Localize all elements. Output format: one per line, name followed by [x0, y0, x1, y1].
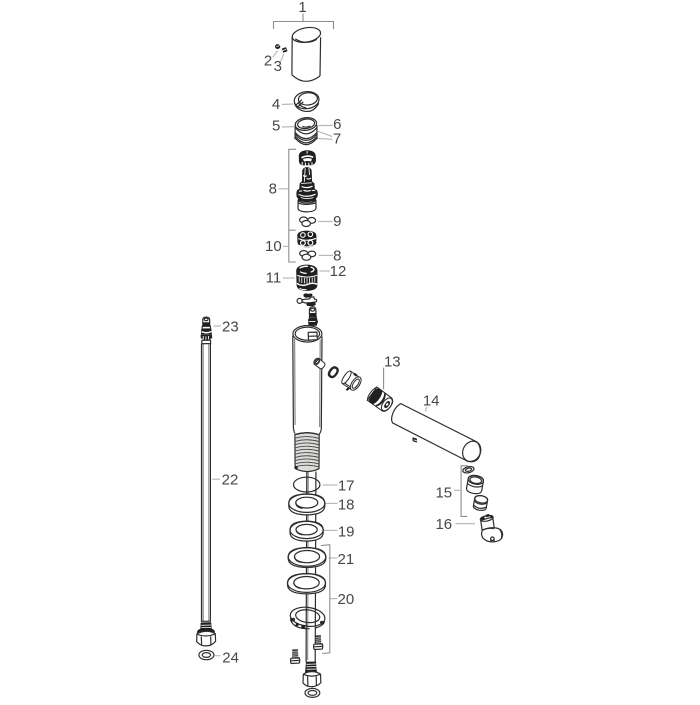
svg-text:21: 21: [338, 551, 355, 568]
svg-text:18: 18: [338, 496, 355, 513]
svg-text:5: 5: [272, 118, 280, 135]
svg-text:17: 17: [338, 477, 355, 494]
svg-text:2: 2: [264, 53, 272, 70]
svg-text:14: 14: [423, 392, 440, 409]
svg-text:16: 16: [435, 516, 452, 533]
svg-text:3: 3: [274, 58, 282, 75]
svg-text:22: 22: [222, 472, 239, 489]
svg-text:24: 24: [222, 650, 239, 667]
svg-text:8: 8: [269, 181, 277, 198]
svg-text:4: 4: [272, 96, 280, 113]
svg-text:15: 15: [435, 484, 452, 501]
svg-text:20: 20: [338, 591, 355, 608]
svg-text:19: 19: [338, 523, 355, 540]
svg-text:9: 9: [333, 213, 341, 230]
svg-text:23: 23: [222, 318, 239, 335]
svg-text:12: 12: [330, 263, 347, 280]
svg-text:7: 7: [333, 131, 341, 148]
svg-text:10: 10: [265, 238, 282, 255]
svg-text:13: 13: [384, 353, 401, 370]
svg-text:11: 11: [266, 269, 282, 286]
